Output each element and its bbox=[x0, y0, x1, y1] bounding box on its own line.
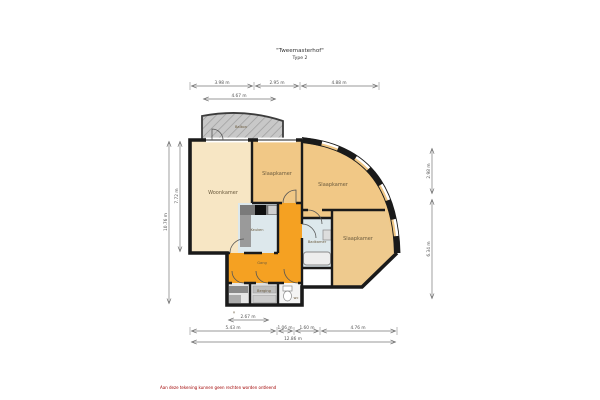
slaapkamer3-label: Slaapkamer bbox=[343, 236, 374, 242]
dim-top-3: 4.88 m bbox=[331, 80, 346, 86]
disclaimer-text: Aan deze tekening kunnen geen rechten wo… bbox=[160, 385, 277, 390]
dim-bottom-inner: 2.67 m bbox=[240, 314, 255, 320]
entry-marker: × bbox=[232, 311, 235, 315]
balkon-label: Balkon bbox=[235, 125, 247, 129]
keuken-label: Keuken bbox=[250, 228, 263, 232]
dim-right-top: 2.98 m bbox=[426, 163, 432, 178]
wc-label: wc bbox=[294, 296, 299, 300]
woonkamer-label: Woonkamer bbox=[208, 190, 239, 196]
meter-box-icon bbox=[229, 295, 241, 303]
dim-top-2: 2.95 m bbox=[269, 80, 284, 86]
gang-label: Gang bbox=[257, 261, 267, 265]
floor-plan: "Tweemasterhof" Type 2 Balkon bbox=[0, 0, 600, 400]
berging-label: Berging bbox=[257, 289, 271, 293]
washbasin-icon bbox=[323, 230, 331, 240]
kitchen-counter-left bbox=[240, 215, 251, 247]
dimensions-top: 3.98 m 2.95 m 4.88 m 4.67 m bbox=[190, 80, 379, 99]
bathtub-icon bbox=[304, 252, 331, 265]
dimensions-left: 10.76 m 7.72 m bbox=[163, 142, 180, 304]
shaft-void bbox=[302, 268, 332, 287]
meter-cabinet-icon bbox=[229, 286, 248, 293]
dimensions-bottom: 2.67 m 5.43 m 1.06 m 1.60 m 4.76 m 12.86… bbox=[190, 314, 397, 342]
dim-bottom-4: 4.76 m bbox=[350, 325, 365, 331]
toilet-icon bbox=[284, 291, 292, 301]
badkamer-label: Badkamer bbox=[308, 240, 327, 244]
floor-plan-page: "Tweemasterhof" Type 2 Balkon bbox=[0, 0, 600, 400]
plan-title: "Tweemasterhof" bbox=[276, 48, 324, 54]
shelf-icon-2 bbox=[253, 296, 276, 303]
dim-bottom-1: 5.43 m bbox=[225, 325, 240, 331]
room-balkon: Balkon bbox=[202, 113, 283, 140]
dim-top-inner: 4.67 m bbox=[231, 93, 246, 99]
stove-icon bbox=[255, 205, 266, 215]
toilet-tank-icon bbox=[283, 286, 292, 291]
dim-bottom-2: 1.06 m bbox=[277, 325, 292, 331]
slaapkamer2-label: Slaapkamer bbox=[318, 182, 349, 188]
plan-subtitle: Type 2 bbox=[292, 55, 308, 61]
dim-top-1: 3.98 m bbox=[214, 80, 229, 86]
dim-right-bottom: 6.34 m bbox=[426, 241, 432, 256]
sink-icon bbox=[268, 206, 277, 215]
dim-bottom-3: 1.60 m bbox=[299, 325, 314, 331]
dim-bottom-total: 12.86 m bbox=[284, 336, 302, 342]
slaapkamer1-label: Slaapkamer bbox=[262, 171, 293, 177]
room-slaapkamer3-floor bbox=[332, 210, 397, 287]
dimensions-right: 2.98 m 6.34 m bbox=[426, 149, 432, 299]
dim-left-outer: 10.76 m bbox=[163, 213, 169, 231]
dim-left-inner: 7.72 m bbox=[174, 188, 180, 203]
